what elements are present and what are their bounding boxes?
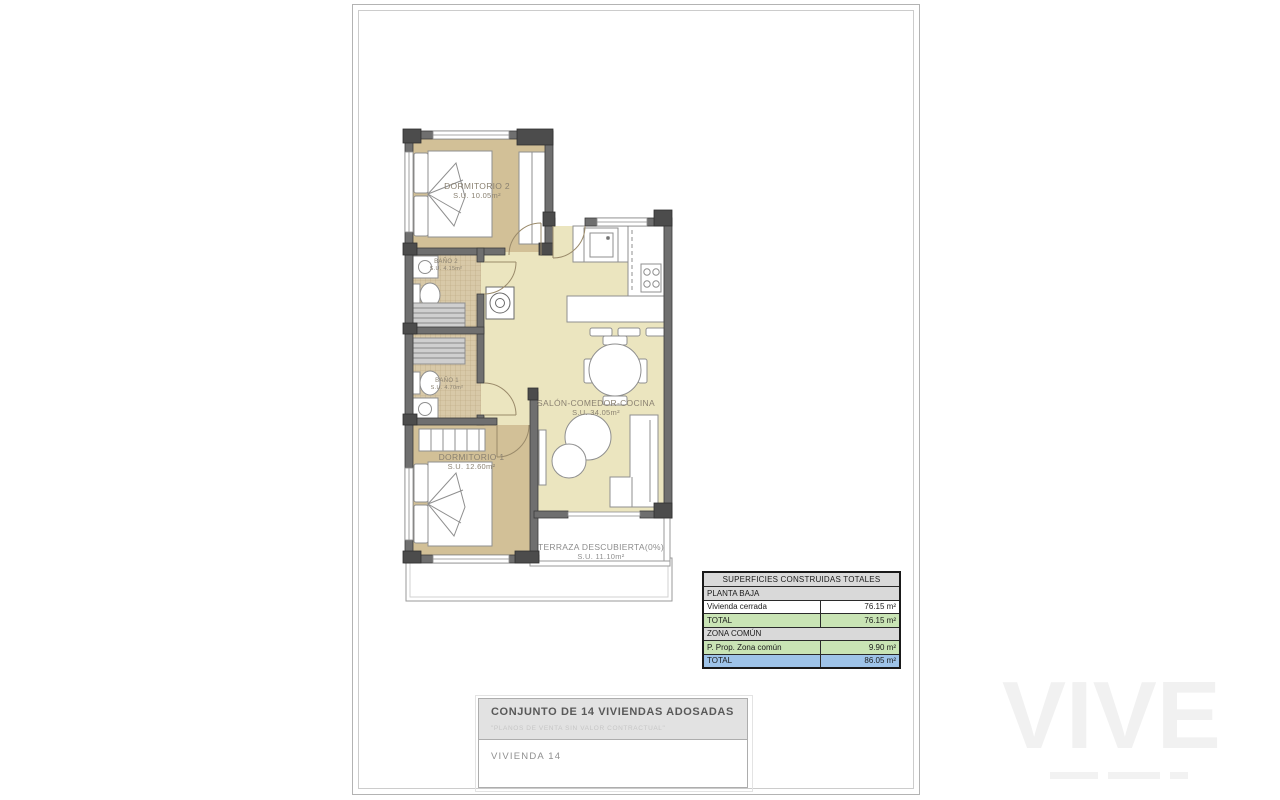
row-value: 9.90 m² [820,641,899,654]
row-label: TOTAL [704,655,820,668]
hob-icon [641,264,661,292]
disclaimer-text: "PLANOS DE VENTA SIN VALOR CONTRACTUAL" [491,725,735,732]
row-value [821,587,899,600]
table-row: TOTAL 76.15 m² [704,614,899,628]
page: { "plan": { "rooms": { "dormitorio2": {"… [0,0,1280,800]
tv-unit [539,430,546,485]
toilet-icon [413,371,440,395]
project-title: CONJUNTO DE 14 VIVIENDAS ADOSADAS [491,706,735,718]
row-value: 86.05 m² [820,655,899,668]
wardrobe-icon [419,429,485,451]
stool-icons [590,328,668,336]
table-row: P. Prop. Zona común 9.90 m² [704,641,899,655]
row-label: TOTAL [704,614,820,627]
row-label: P. Prop. Zona común [704,641,820,654]
row-label: PLANTA BAJA [704,587,821,600]
table-row: PLANTA BAJA [704,587,899,601]
shower-icon [413,303,465,329]
title-block: CONJUNTO DE 14 VIVIENDAS ADOSADAS "PLANO… [478,698,748,788]
row-value: 76.15 m² [820,601,899,614]
row-label: Vivienda cerrada [704,601,820,614]
table-row: ZONA COMÚN [704,628,899,642]
row-value: 76.15 m² [820,614,899,627]
title-block-header: CONJUNTO DE 14 VIVIENDAS ADOSADAS "PLANO… [479,699,747,740]
surfaces-table-title: SUPERFICIES CONSTRUIDAS TOTALES [704,573,899,587]
row-label: ZONA COMÚN [704,628,821,641]
unit-name: VIVIENDA 14 [479,740,747,773]
table-row: Vivienda cerrada 76.15 m² [704,601,899,615]
row-value [821,628,899,641]
surfaces-table: SUPERFICIES CONSTRUIDAS TOTALES PLANTA B… [702,571,901,669]
floor-plan [0,0,1280,800]
washer-icon [486,287,514,319]
shower-icon [413,338,465,364]
sink-icon [413,256,438,278]
table-row: TOTAL 86.05 m² [704,655,899,668]
